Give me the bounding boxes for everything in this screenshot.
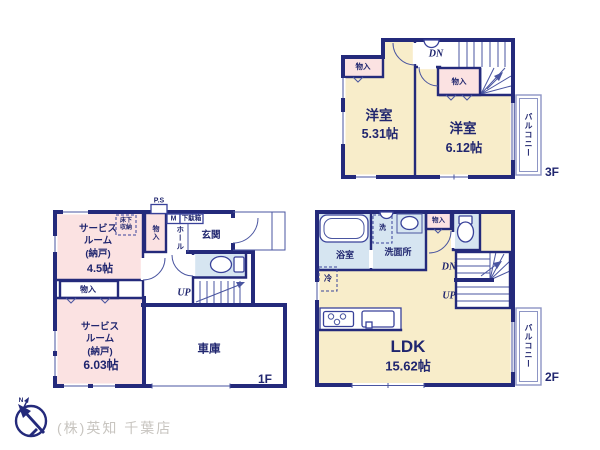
label-1f-service-room2-name: サービス ルーム (納戸) [81,321,119,358]
label-1f-service-room1-name: サービス ルーム (納戸) [79,223,117,260]
label-1f-shoe-box: 下駄箱 [182,214,202,222]
toilet-icon-1f [211,257,245,273]
toilet-icon-2f [458,216,474,242]
bathtub-icon [320,215,368,242]
label-1f-entrance: 玄関 [201,230,220,242]
label-2f-floor: 2F [545,370,559,386]
label-1f-service-room2-area: 6.03帖 [83,358,118,374]
label-2f-bathroom: 浴室 [336,250,354,262]
label-2f-closet: 物入 [432,216,445,224]
label-1f-closet-tall: 物入 [152,225,159,241]
label-3f-closet-left: 物入 [356,62,371,72]
label-2f-fridge: 冷 [324,274,332,284]
label-2f-balcony: バルコニー [524,324,532,369]
label-2f-stairs-down: DN [442,261,456,274]
label-3f-floor: 3F [545,165,559,181]
label-1f-garage: 車庫 [198,343,221,358]
label-3f-closet-center: 物入 [452,77,467,87]
label-3f-balcony: バルコニー [524,113,532,158]
label-1f-hall: ホール [176,225,184,251]
label-1f-pipe-space: P.S [154,196,164,205]
label-2f-stairs-up: UP [442,290,455,303]
entrance-porch [233,212,285,250]
label-1f-stairs-up: UP [177,287,190,300]
company-name: (株)英知 千葉店 [57,418,172,438]
label-3f-bedroom2-area: 6.12帖 [446,140,483,156]
label-2f-ldk-area: 15.62帖 [385,359,431,376]
label-3f-bedroom1-name: 洋室 [366,107,393,125]
label-1f-closet-mid: 物入 [80,284,96,294]
label-3f-bedroom1-area: 5.31帖 [362,126,399,142]
label-compass-north: N [19,397,24,405]
label-3f-bedroom2-name: 洋室 [450,120,477,138]
label-2f-ldk-name: LDK [391,336,426,358]
pipe-space-box [151,205,167,214]
stairs-1f [196,281,240,304]
label-3f-stairs-down: DN [429,48,443,61]
label-1f-underfloor-storage: 床下 収納 [120,217,132,231]
label-1f-service-room1-area: 4.5帖 [87,261,113,275]
label-1f-floor: 1F [258,372,272,388]
label-1f-meter: M [171,214,177,223]
label-2f-washer: 洗 [379,223,386,232]
kitchen-counter [320,308,401,330]
floorplan-canvas: 物入 DN 物入 洋室 5.31帖 洋室 6.12帖 バルコニー 3F P.S … [0,0,600,450]
label-2f-washroom: 洗面所 [384,247,411,259]
